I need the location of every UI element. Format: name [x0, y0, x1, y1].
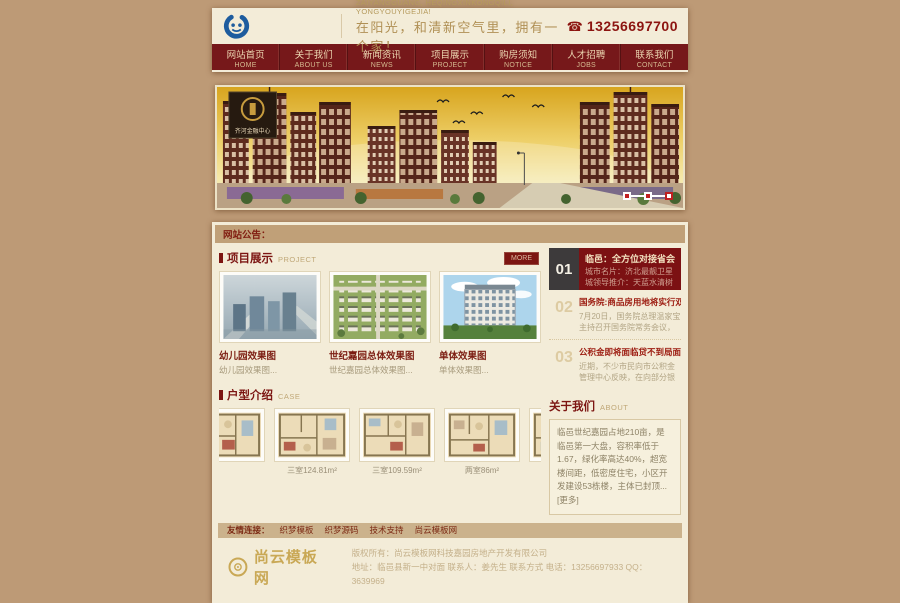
- left-column: 项目展示 PROJECT MORE: [219, 248, 541, 515]
- news-title[interactable]: 公积金即将面临贷不到局面: [579, 346, 681, 358]
- about-section: 关于我们 ABOUT 临邑世纪嘉园占地210亩，是临邑第一大盘，容积率低于1.6…: [549, 398, 681, 515]
- section-marker-icon: [219, 390, 223, 400]
- friend-link[interactable]: 尚云模板网: [415, 524, 458, 536]
- project-subtitle: PROJECT: [278, 255, 317, 264]
- nav-item-contact[interactable]: 联系我们 CONTACT: [621, 44, 688, 70]
- project-title: 项目展示: [227, 250, 273, 266]
- more-button[interactable]: MORE: [504, 252, 539, 265]
- project-cards: 幼儿园效果图 幼儿园效果图...: [219, 271, 541, 376]
- pager-connector: [652, 195, 665, 197]
- about-text: 临邑世纪嘉园占地210亩，是临邑第一大盘，容积率低于1.67，绿化率高达40%，…: [557, 427, 668, 491]
- footer-contact: 地址：临邑县新一中对面 联系人：姜先生 联系方式 电话：13256697933 …: [352, 560, 679, 589]
- footer-copyright: 版权所有：尚云模板网科技嘉园房地产开发有限公司: [352, 546, 679, 560]
- section-marker-icon: [219, 253, 223, 263]
- banner-badge-text: 齐河金融中心: [235, 127, 271, 135]
- nav-label-en: NEWS: [348, 62, 415, 69]
- banner-pager-dot-3-active[interactable]: [665, 192, 673, 200]
- phone-number: 13256697700: [587, 18, 678, 34]
- nav-label-en: JOBS: [553, 62, 620, 69]
- friend-link[interactable]: 技术支持: [370, 524, 404, 536]
- case-section: 户型介绍 CASE: [219, 387, 541, 475]
- project-card-title[interactable]: 世纪嘉园总体效果图: [329, 348, 431, 362]
- nav-label-cn: 网站首页: [212, 47, 279, 61]
- about-text-box: 临邑世纪嘉园占地210亩，是临邑第一大盘，容积率低于1.67，绿化率高达40%，…: [549, 419, 681, 515]
- case-section-header: 户型介绍 CASE: [219, 387, 541, 403]
- nav-item-project[interactable]: 项目展示 PROJECT: [416, 44, 484, 70]
- nav-item-home[interactable]: 网站首页 HOME: [212, 44, 280, 70]
- friend-links-bar: 友情连接： 织梦模板 织梦源码 技术支持 尚云模板网: [218, 523, 682, 538]
- news-item[interactable]: 03 公积金即将面临贷不到局面 近期，不少市民向市公积金管理中心反映，在向部分银…: [549, 340, 681, 389]
- floorplan-card[interactable]: 两室86m²: [444, 408, 520, 475]
- nav-label-cn: 购房须知: [485, 47, 552, 61]
- news-item-featured[interactable]: 01 临邑：全方位对接省会经济圈 城市名片：济北最靓卫星城领导推介：天蓝水清树绿…: [549, 248, 681, 290]
- footer-site-name: 尚云模板网: [254, 546, 334, 588]
- content-area: 项目展示 PROJECT MORE: [215, 243, 685, 515]
- header-phone: ☎ 13256697700: [567, 18, 678, 34]
- news-title[interactable]: 国务院:商品房用地将实行双轨: [579, 296, 681, 308]
- project-card-desc: 幼儿园效果图...: [219, 364, 321, 376]
- news-snippet: 近期，不少市民向市公积金管理中心反映，在向部分银行申...: [579, 361, 681, 383]
- floorplan-card[interactable]: 三室124.81m²: [274, 408, 350, 475]
- nav-label-cn: 项目展示: [416, 47, 483, 61]
- site-logo-icon[interactable]: [222, 9, 251, 43]
- nav-label-cn: 联系我们: [621, 47, 688, 61]
- slogan-pinyin: ZAIYANGGUANG, HEQINGXINKONGQILI, YONGYOU…: [356, 0, 567, 16]
- nav-label-en: ABOUT US: [280, 62, 347, 69]
- floorplan-caption: [219, 465, 265, 475]
- banner-badge: 齐河金融中心: [229, 92, 277, 138]
- about-subtitle: ABOUT: [600, 403, 628, 412]
- nav-label-cn: 关于我们: [280, 47, 347, 61]
- friend-links-label: 友情连接：: [227, 524, 270, 536]
- project-thumb-aerial: [219, 271, 321, 343]
- project-thumb-building: [439, 271, 541, 343]
- announcement-bar: 网站公告：: [215, 225, 685, 243]
- banner-pager: [623, 192, 673, 200]
- nav-item-jobs[interactable]: 人才招聘 JOBS: [553, 44, 621, 70]
- about-more-link[interactable]: [更多]: [557, 495, 579, 505]
- nav-label-cn: 新闻资讯: [348, 47, 415, 61]
- news-rank-badge: 02: [549, 296, 579, 333]
- project-card-title[interactable]: 单体效果图: [439, 348, 541, 362]
- nav-item-notice[interactable]: 购房须知 NOTICE: [485, 44, 553, 70]
- header-divider: [341, 14, 342, 38]
- floorplan-carousel[interactable]: 三室124.81m²: [219, 408, 541, 475]
- phone-icon: ☎: [567, 20, 583, 33]
- announcement-label: 网站公告：: [223, 227, 271, 241]
- site-footer: 尚云模板网 版权所有：尚云模板网科技嘉园房地产开发有限公司 地址：临邑县新一中对…: [215, 538, 685, 589]
- main-panel: 网站公告： 项目展示 PROJECT MORE: [212, 222, 688, 603]
- news-snippet: 7月20日，国务院总理温家宝主持召开国务院常务会议，研究...: [579, 311, 681, 333]
- floorplan-card[interactable]: 三室109.59m²: [359, 408, 435, 475]
- site-header: ZAIYANGGUANG, HEQINGXINKONGQILI, YONGYOU…: [212, 8, 688, 44]
- nav-label-en: HOME: [212, 62, 279, 69]
- friend-link[interactable]: 织梦模板: [280, 524, 314, 536]
- project-card-siteplan[interactable]: 世纪嘉园总体效果图 世纪嘉园总体效果图...: [329, 271, 431, 376]
- pager-connector: [631, 195, 644, 197]
- right-column: 01 临邑：全方位对接省会经济圈 城市名片：济北最靓卫星城领导推介：天蓝水清树绿…: [549, 248, 681, 515]
- project-card-desc: 世纪嘉园总体效果图...: [329, 364, 431, 376]
- news-rank-badge: 03: [549, 346, 579, 383]
- banner-pager-dot-2[interactable]: [644, 192, 652, 200]
- hero-banner: 齐河金融中心: [215, 85, 685, 210]
- footer-logo-icon: [227, 556, 249, 578]
- news-item[interactable]: 02 国务院:商品房用地将实行双轨 7月20日，国务院总理温家宝主持召开国务院常…: [549, 290, 681, 340]
- project-card-kindergarten[interactable]: 幼儿园效果图 幼儿园效果图...: [219, 271, 321, 376]
- project-thumb-siteplan: [329, 271, 431, 343]
- project-card-desc: 单体效果图...: [439, 364, 541, 376]
- friend-link[interactable]: 织梦源码: [325, 524, 359, 536]
- news-snippet: 城市名片：济北最靓卫星城领导推介：天蓝水清树绿，宜商...: [585, 267, 675, 289]
- main-nav: 网站首页 HOME 关于我们 ABOUT US 新闻资讯 NEWS 项目展示 P…: [212, 44, 688, 72]
- project-card-title[interactable]: 幼儿园效果图: [219, 348, 321, 362]
- footer-info: 版权所有：尚云模板网科技嘉园房地产开发有限公司 地址：临邑县新一中对面 联系人：…: [352, 546, 679, 589]
- news-title[interactable]: 临邑：全方位对接省会经济圈: [585, 252, 675, 265]
- nav-item-news[interactable]: 新闻资讯 NEWS: [348, 44, 416, 70]
- site-container: ZAIYANGGUANG, HEQINGXINKONGQILI, YONGYOU…: [212, 0, 688, 603]
- nav-label-en: PROJECT: [416, 62, 483, 69]
- nav-label-cn: 人才招聘: [553, 47, 620, 61]
- case-subtitle: CASE: [278, 392, 300, 401]
- footer-logo[interactable]: 尚云模板网: [227, 546, 334, 588]
- news-rank-badge: 01: [549, 248, 579, 290]
- about-section-header: 关于我们 ABOUT: [549, 398, 681, 414]
- floorplan-caption: 三室109.59m²: [359, 465, 435, 475]
- floorplan-card[interactable]: 两室95..: [529, 408, 541, 475]
- project-card-building[interactable]: 单体效果图 单体效果图...: [439, 271, 541, 376]
- floorplan-caption: 两室95..: [529, 465, 541, 475]
- floorplan-card[interactable]: [219, 408, 265, 475]
- project-section-header: 项目展示 PROJECT MORE: [219, 250, 541, 266]
- nav-item-about[interactable]: 关于我们 ABOUT US: [280, 44, 348, 70]
- case-title: 户型介绍: [227, 387, 273, 403]
- nav-label-en: CONTACT: [621, 62, 688, 69]
- floorplan-caption: 三室124.81m²: [274, 465, 350, 475]
- banner-pager-dot-1[interactable]: [623, 192, 631, 200]
- about-title: 关于我们: [549, 398, 595, 414]
- nav-label-en: NOTICE: [485, 62, 552, 69]
- floorplan-caption: 两室86m²: [444, 465, 520, 475]
- banner-cityscape-image: 齐河金融中心: [217, 87, 683, 208]
